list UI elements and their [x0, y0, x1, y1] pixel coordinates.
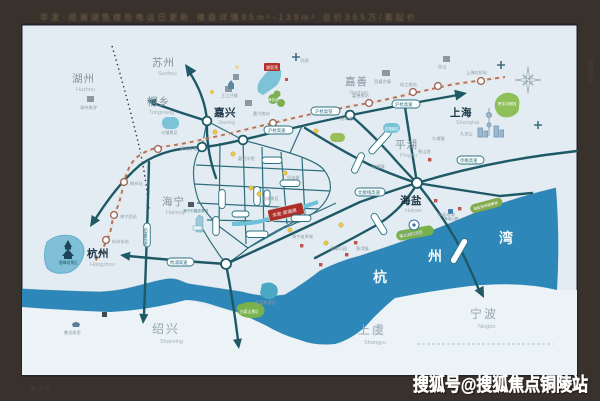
svg-text:东湖景区: 东湖景区 [385, 126, 399, 131]
svg-text:上海: 上海 [450, 106, 472, 119]
svg-text:搜狐号@搜狐焦点铜陵站: 搜狐号@搜狐焦点铜陵站 [413, 374, 588, 395]
svg-text:海宁皮革城: 海宁皮革城 [292, 233, 314, 240]
svg-text:海盐: 海盐 [400, 194, 422, 207]
svg-text:南湖景区: 南湖景区 [262, 195, 279, 202]
svg-text:海宁西站: 海宁西站 [120, 213, 137, 220]
svg-text:桐乡: 桐乡 [147, 95, 170, 108]
svg-text:汾湖: 汾湖 [300, 57, 308, 64]
svg-text:桐乡站: 桐乡站 [130, 180, 143, 187]
svg-text:雷峰塔景区: 雷峰塔景区 [59, 260, 78, 265]
svg-text:宁波: 宁波 [470, 306, 498, 321]
svg-text:黄湾镇: 黄湾镇 [356, 245, 369, 252]
svg-text:杭浦高速: 杭浦高速 [170, 259, 188, 266]
svg-text:杭州东站: 杭州东站 [112, 238, 129, 245]
svg-text:上虞: 上虞 [358, 323, 386, 337]
svg-text:九龙山: 九龙山 [460, 130, 473, 137]
svg-text:金山: 金山 [438, 63, 446, 70]
svg-text:海宁中国皮革城: 海宁中国皮革城 [183, 208, 209, 213]
svg-text:独山港: 独山港 [418, 148, 431, 155]
svg-text:松江南站: 松江南站 [400, 81, 417, 88]
svg-text:Haiyan: Haiyan [405, 208, 422, 214]
svg-text:野生动物园: 野生动物园 [498, 101, 516, 106]
svg-text:海盐老城: 海盐老城 [438, 211, 456, 218]
svg-text:Pinghu: Pinghu [400, 153, 417, 159]
svg-text:高桥街道: 高桥街道 [180, 145, 198, 152]
svg-text:王江泾镇: 王江泾镇 [221, 92, 238, 99]
svg-text:焦点站: 焦点站 [30, 384, 51, 393]
svg-text:盐官旅游区: 盐官旅游区 [255, 299, 276, 306]
svg-text:湘家荡: 湘家荡 [266, 64, 278, 70]
svg-text:西塘古镇: 西塘古镇 [374, 78, 391, 85]
svg-text:乌镇景区: 乌镇景区 [161, 129, 178, 136]
svg-text:油车港: 油车港 [340, 115, 353, 122]
svg-text:上海虹桥站: 上海虹桥站 [466, 69, 487, 76]
svg-text:沪杭高速: 沪杭高速 [395, 101, 413, 108]
svg-text:亭枫高速: 亭枫高速 [460, 157, 478, 164]
svg-text:北接线高速: 北接线高速 [358, 189, 381, 196]
svg-text:秦山核电站: 秦山核电站 [402, 230, 423, 237]
svg-text:绍兴: 绍兴 [152, 322, 180, 336]
svg-text:华发·观澜湖售楼处电话已更新 楼盘详情95m²-139m²: 华发·观澜湖售楼处电话已更新 楼盘详情95m²-139m² 总价365万/套起价 [40, 12, 418, 22]
svg-text:观潮公园: 观潮公园 [330, 245, 347, 252]
svg-text:乍浦镇: 乍浦镇 [432, 135, 445, 142]
svg-text:Shanghai: Shanghai [456, 120, 479, 126]
svg-text:杭: 杭 [373, 269, 387, 285]
svg-text:州: 州 [427, 248, 442, 264]
svg-text:嘉善: 嘉善 [345, 75, 368, 88]
svg-text:科技城: 科技城 [287, 174, 300, 181]
svg-text:Jiaxing: Jiaxing [218, 120, 235, 126]
svg-text:嘉兴南站: 嘉兴南站 [253, 110, 270, 117]
svg-text:嘉兴: 嘉兴 [213, 106, 236, 119]
svg-text:白塔山景区: 白塔山景区 [240, 309, 259, 314]
svg-text:嘉善南站: 嘉善南站 [352, 92, 369, 99]
svg-text:杭州: 杭州 [87, 247, 109, 260]
svg-text:鲁迅故里: 鲁迅故里 [64, 329, 81, 336]
svg-text:苏州: 苏州 [152, 56, 175, 69]
svg-text:Hangzhou: Hangzhou [90, 262, 115, 268]
svg-text:Ningbo: Ningbo [478, 324, 495, 330]
svg-text:沪杭高铁: 沪杭高铁 [315, 108, 333, 115]
svg-text:海宁: 海宁 [162, 195, 185, 208]
svg-text:沪杭高速: 沪杭高速 [268, 127, 286, 134]
svg-text:Shaoxing: Shaoxing [160, 339, 183, 345]
svg-text:Haining: Haining [166, 210, 185, 216]
svg-text:Suzhou: Suzhou [158, 71, 177, 77]
svg-text:湖州: 湖州 [72, 73, 95, 85]
svg-text:Tongxiang: Tongxiang [149, 110, 174, 116]
svg-text:湖州南浔: 湖州南浔 [80, 104, 98, 111]
svg-text:全塘镇: 全塘镇 [372, 163, 385, 170]
svg-text:搜狐焦点: 搜狐焦点 [586, 59, 593, 85]
svg-text:梅花洲: 梅花洲 [268, 97, 279, 102]
svg-text:绍嘉高速: 绍嘉高速 [143, 227, 149, 247]
svg-text:Huzhou: Huzhou [76, 87, 95, 93]
svg-text:Shangyu: Shangyu [364, 340, 386, 346]
svg-text:嘉兴学院: 嘉兴学院 [238, 155, 256, 162]
svg-text:湾: 湾 [499, 230, 513, 246]
svg-text:平湖: 平湖 [395, 139, 418, 151]
